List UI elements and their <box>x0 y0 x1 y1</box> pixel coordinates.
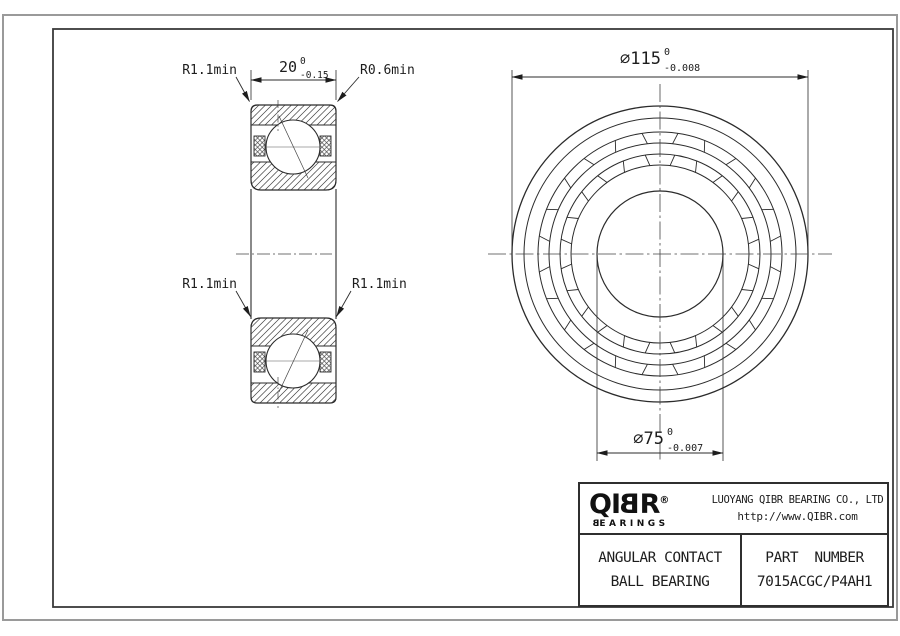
callout-radius-mid-right: R1.1min <box>352 277 407 292</box>
callout-radius-top-right: R0.6min <box>360 63 415 78</box>
brand-logo-text: QIBR® <box>589 488 708 518</box>
part-number-value: 7015ACGC/P4AH1 <box>757 574 872 590</box>
dim-width: 20 0 -0.15 <box>251 56 336 100</box>
company-name: LUOYANG QIBR BEARING CO., LTD <box>712 494 884 506</box>
callout-radius-mid-left: R1.1min <box>182 277 237 292</box>
dim-od-tol-upper: 0 <box>664 47 670 58</box>
brand-logo: QIBR® BEARINGS <box>580 484 708 533</box>
title-block-header-row: QIBR® BEARINGS LUOYANG QIBR BEARING CO.,… <box>580 484 887 535</box>
company-website: http://www.QIBR.com <box>737 510 857 523</box>
dim-width-tol-lower: -0.15 <box>300 70 329 81</box>
product-type-cell: ANGULAR CONTACT BALL BEARING <box>580 535 742 605</box>
dim-width-value: 20 <box>279 58 297 76</box>
brand-wordmark: BEARINGS <box>589 519 708 529</box>
cage-section-top-right <box>320 136 331 156</box>
product-type-line2: BALL BEARING <box>611 574 710 590</box>
cage-section-bottom-left <box>254 352 265 372</box>
company-cell: LUOYANG QIBR BEARING CO., LTD http://www… <box>708 484 887 533</box>
title-block: QIBR® BEARINGS LUOYANG QIBR BEARING CO.,… <box>578 482 889 607</box>
part-number-label: PART NUMBER <box>765 550 864 566</box>
cage-section-top-left <box>254 136 265 156</box>
dim-od-tol-lower: -0.008 <box>664 63 700 74</box>
dim-bore-value: ⌀75 <box>633 429 664 449</box>
callout-radius-top-left: R1.1min <box>182 63 237 78</box>
dim-od-value: ⌀115 <box>620 49 661 69</box>
front-view <box>488 84 832 463</box>
part-number-cell: PART NUMBER 7015ACGC/P4AH1 <box>742 535 887 605</box>
title-block-detail-row: ANGULAR CONTACT BALL BEARING PART NUMBER… <box>580 535 887 605</box>
section-view <box>236 100 336 408</box>
dim-width-tol-upper: 0 <box>300 56 306 67</box>
registered-mark: ® <box>659 495 669 506</box>
dim-bore-tol-upper: 0 <box>667 427 673 438</box>
cage-section-bottom-right <box>320 352 331 372</box>
product-type-line1: ANGULAR CONTACT <box>598 550 721 566</box>
dim-bore-tol-lower: -0.007 <box>667 443 703 454</box>
